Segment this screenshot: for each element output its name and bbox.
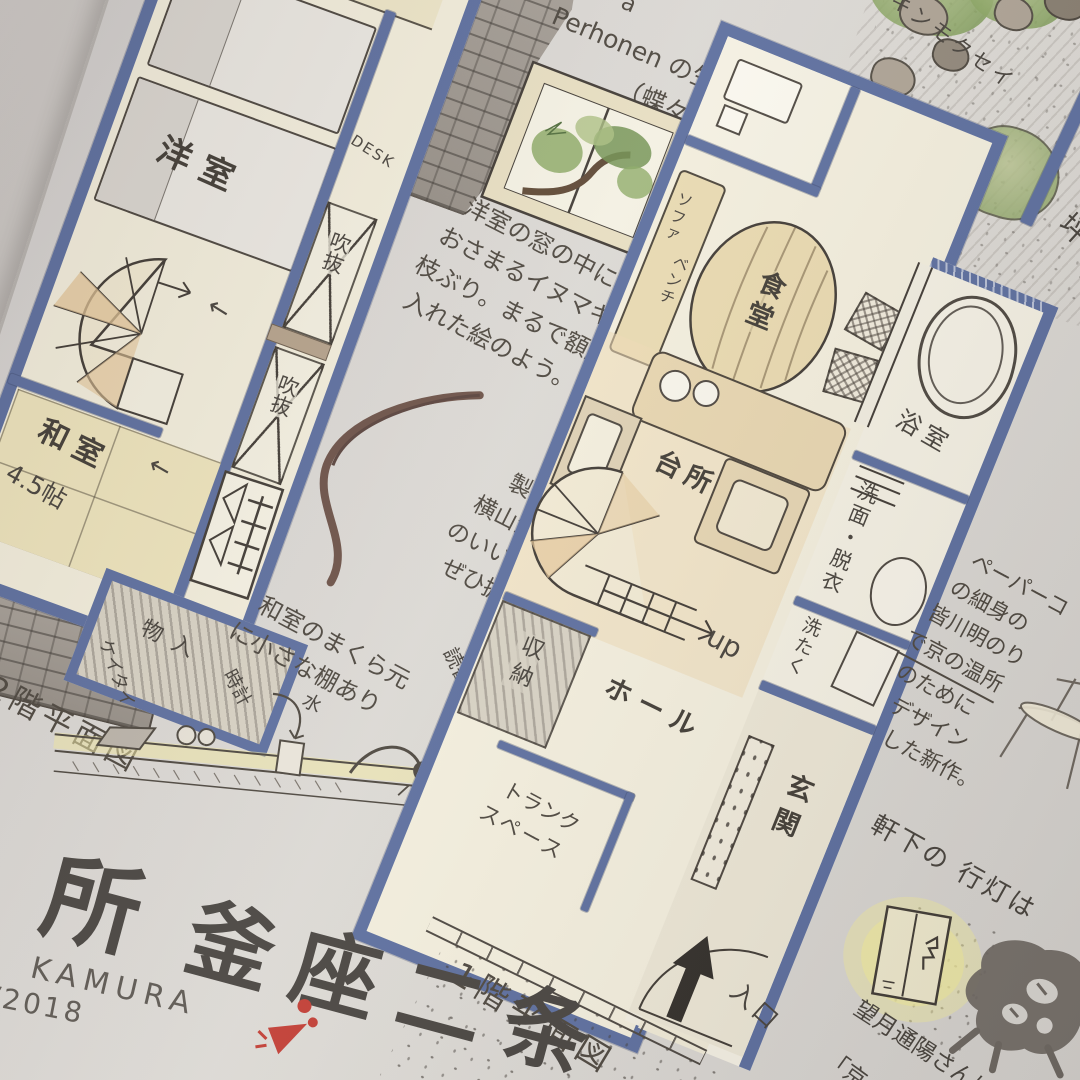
bed-1-pillow — [149, 0, 248, 86]
desk-label: DESK — [347, 132, 397, 172]
photo-of-floorplan-sketch: キンモクセイ 坪庭 出窓 洋室 DESK 吹抜 吹抜 和室 4.5帖 — [0, 0, 1080, 1080]
tilted-paper-wrap: キンモクセイ 坪庭 出窓 洋室 DESK 吹抜 吹抜 和室 4.5帖 — [0, 0, 1080, 1080]
